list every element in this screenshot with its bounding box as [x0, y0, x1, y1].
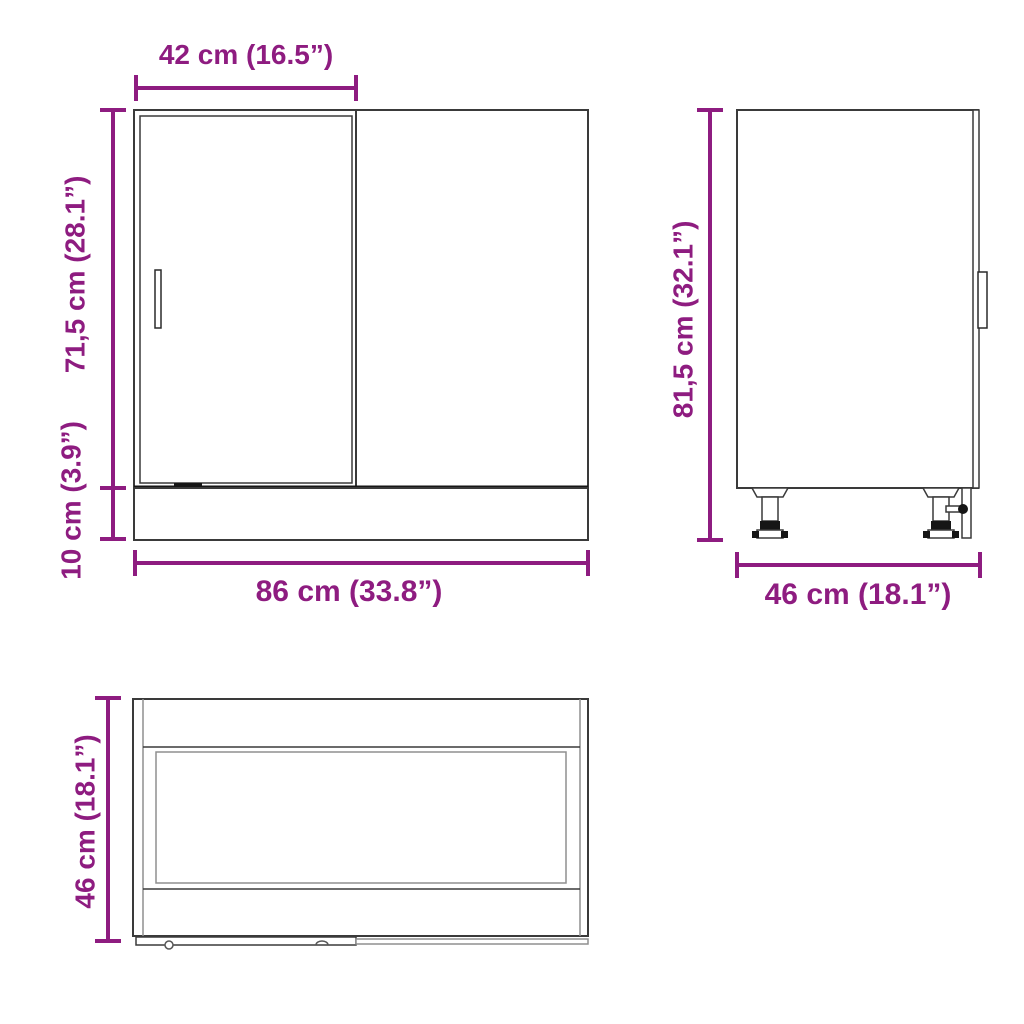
dim-depth-top-label: 46 cm (18.1”) [71, 715, 102, 927]
dim-total-height-line [697, 110, 723, 540]
dim-body-height-label: 71,5 cm (28.1”) [61, 144, 92, 404]
side-foot-left [752, 488, 788, 538]
front-hinge-mark [174, 483, 202, 487]
diagram-line-art [0, 0, 1024, 1024]
dim-depth-side-label: 46 cm (18.1”) [708, 578, 1008, 611]
top-blind-panel [356, 939, 588, 944]
dim-plinth-height-label: 10 cm (3.9”) [57, 405, 88, 595]
dim-total-width-label: 86 cm (33.8”) [199, 575, 499, 608]
dim-depth-side-line [737, 552, 980, 578]
side-foot-adjuster [946, 504, 968, 514]
top-body [133, 699, 588, 936]
front-view-drawing [134, 110, 588, 540]
side-foot-right [923, 488, 959, 538]
dim-total-width-line [135, 550, 588, 576]
dim-front-height-line [100, 110, 126, 539]
side-view-drawing [737, 110, 987, 538]
side-handle [978, 272, 987, 328]
top-hinge-knob [165, 941, 173, 949]
front-plinth [134, 488, 588, 540]
dim-total-height-label: 81,5 cm (32.1”) [669, 189, 700, 449]
side-body [737, 110, 978, 488]
dimension-diagram: 42 cm (16.5”) 71,5 cm (28.1”) 10 cm (3.9… [0, 0, 1024, 1024]
dim-door-width-label: 42 cm (16.5”) [126, 40, 366, 71]
front-door-handle [155, 270, 161, 328]
dim-door-width-line [136, 75, 356, 101]
front-carcass [134, 110, 588, 488]
top-view-drawing [133, 699, 588, 949]
